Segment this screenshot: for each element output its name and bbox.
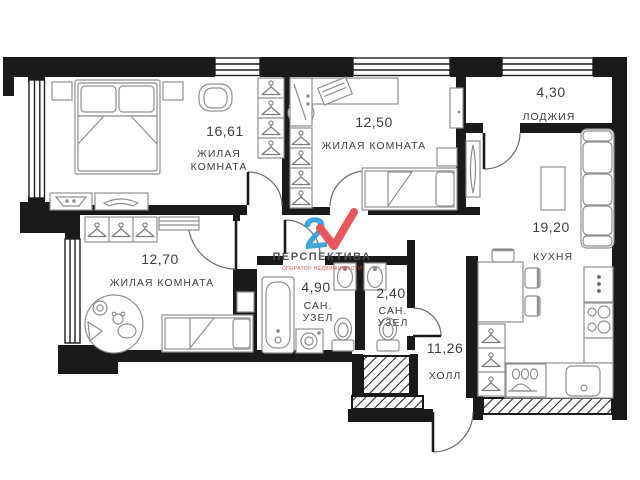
sofa: [581, 129, 614, 248]
double-bed: [75, 80, 160, 174]
stove: [584, 303, 613, 338]
nightstand: [52, 82, 72, 100]
balcony-door-panel: [450, 88, 463, 128]
door-arc-loggia: [484, 133, 520, 169]
bathtub: [262, 277, 294, 353]
single-bed-room1270: [162, 315, 253, 352]
watermark-tagline: ОПЕРАТОР НЕДВИЖИМОСТИ: [282, 266, 362, 272]
label-kitchen: 19,20 КУХНЯ: [532, 219, 573, 263]
pillow: [119, 86, 154, 112]
nightstand: [163, 82, 183, 100]
svg-text:ЖИЛАЯ КОМНАТА: ЖИЛАЯ КОМНАТА: [110, 277, 214, 289]
svg-text:КОМНАТА: КОМНАТА: [191, 161, 248, 173]
radiator-room1270: [159, 217, 199, 230]
svg-text:12,70: 12,70: [141, 251, 179, 267]
window-bedroom-left: [29, 80, 45, 198]
armrest: [583, 131, 612, 141]
window-room1270-left: [65, 239, 80, 343]
play-rug: [85, 295, 143, 353]
fridge: [584, 267, 613, 302]
wardrobe-room1661: [258, 78, 284, 158]
svg-text:КУХНЯ: КУХНЯ: [533, 251, 573, 263]
window-loggia-top: [502, 58, 593, 76]
nightstand: [437, 148, 457, 166]
pillow: [81, 86, 116, 112]
cushion: [583, 206, 612, 235]
door-arc-room1250: [330, 171, 366, 206]
dining-table-set: [478, 249, 540, 322]
label-room1250: 12,50 ЖИЛАЯ КОМНАТА: [322, 114, 426, 152]
label-bath490: 4,90 САН. УЗЕЛ: [301, 279, 333, 324]
window-room1250-top: [353, 58, 450, 76]
kitchen-sink: [566, 366, 600, 396]
svg-text:САН.: САН.: [304, 300, 333, 312]
label-bath240: 2,40 САН. УЗЕЛ: [376, 285, 408, 329]
wall-hatch-left: [352, 396, 423, 409]
door-arc-room1661: [248, 172, 282, 206]
nightstand: [237, 292, 254, 312]
svg-text:САН.: САН.: [379, 305, 408, 317]
cabinet-open-door: [290, 78, 312, 126]
window-bedroom-top: [215, 58, 260, 76]
chair: [525, 268, 540, 288]
dresser: [50, 193, 92, 210]
radiator-kitchen-wall: [466, 141, 480, 197]
wardrobe-hall: [478, 324, 505, 396]
cushion: [583, 142, 612, 173]
utility-shaft: [363, 356, 410, 394]
label-room1661: 16,61 ЖИЛАЯ КОМНАТА: [191, 123, 248, 173]
watermark: 2 ПЕРСПЕКТИВА ОПЕРАТОР НЕДВИЖИМОСТИ: [273, 208, 372, 272]
svg-text:11,26: 11,26: [427, 340, 464, 356]
wall-hatch-kitchen: [483, 398, 612, 414]
kitchen-appliance: [506, 364, 546, 397]
single-bed-room1250: [362, 168, 457, 210]
svg-text:16,61: 16,61: [206, 123, 244, 139]
label-room1270: 12,70 ЖИЛАЯ КОМНАТА: [110, 251, 214, 289]
label-hall: 11,26 ХОЛЛ: [427, 340, 464, 382]
dining-table: [478, 262, 523, 322]
counter-right: [584, 338, 613, 363]
svg-text:4,30: 4,30: [536, 84, 565, 100]
coffee-table: [541, 167, 565, 210]
svg-text:4,90: 4,90: [301, 279, 330, 295]
chair: [492, 249, 514, 262]
svg-text:12,50: 12,50: [355, 114, 393, 130]
floor-plan: 16,61 ЖИЛАЯ КОМНАТА 12,50 ЖИЛАЯ КОМНАТА …: [0, 0, 640, 480]
armchair: [199, 84, 232, 111]
wardrobe-room1270: [85, 217, 157, 242]
chair: [525, 296, 540, 316]
floor-plan-page: 16,61 ЖИЛАЯ КОМНАТА 12,50 ЖИЛАЯ КОМНАТА …: [0, 0, 640, 480]
svg-text:УЗЕЛ: УЗЕЛ: [303, 312, 334, 324]
svg-text:ЖИЛАЯ КОМНАТА: ЖИЛАЯ КОМНАТА: [322, 140, 426, 152]
watermark-brand: ПЕРСПЕКТИВА: [273, 251, 372, 263]
svg-text:УЗЕЛ: УЗЕЛ: [378, 317, 409, 329]
washing-machine: [296, 329, 323, 353]
armrest: [583, 236, 612, 246]
label-loggia: 4,30 ЛОДЖИЯ: [523, 84, 576, 123]
svg-text:ЛОДЖИЯ: ЛОДЖИЯ: [523, 111, 576, 123]
toilet-bath490: [332, 318, 354, 351]
cushion: [583, 174, 612, 205]
svg-text:2,40: 2,40: [376, 285, 405, 301]
pillow: [233, 319, 250, 348]
svg-text:ХОЛЛ: ХОЛЛ: [429, 370, 462, 382]
wardrobe-room1250: [290, 128, 312, 208]
tv-stand: [95, 193, 148, 210]
door-arc-entrance: [433, 412, 473, 452]
pillow: [436, 172, 454, 206]
door-arc-bath240: [413, 308, 441, 336]
svg-text:ЖИЛАЯ: ЖИЛАЯ: [197, 148, 241, 160]
toy-bear-body: [118, 324, 136, 338]
svg-text:19,20: 19,20: [532, 219, 570, 235]
